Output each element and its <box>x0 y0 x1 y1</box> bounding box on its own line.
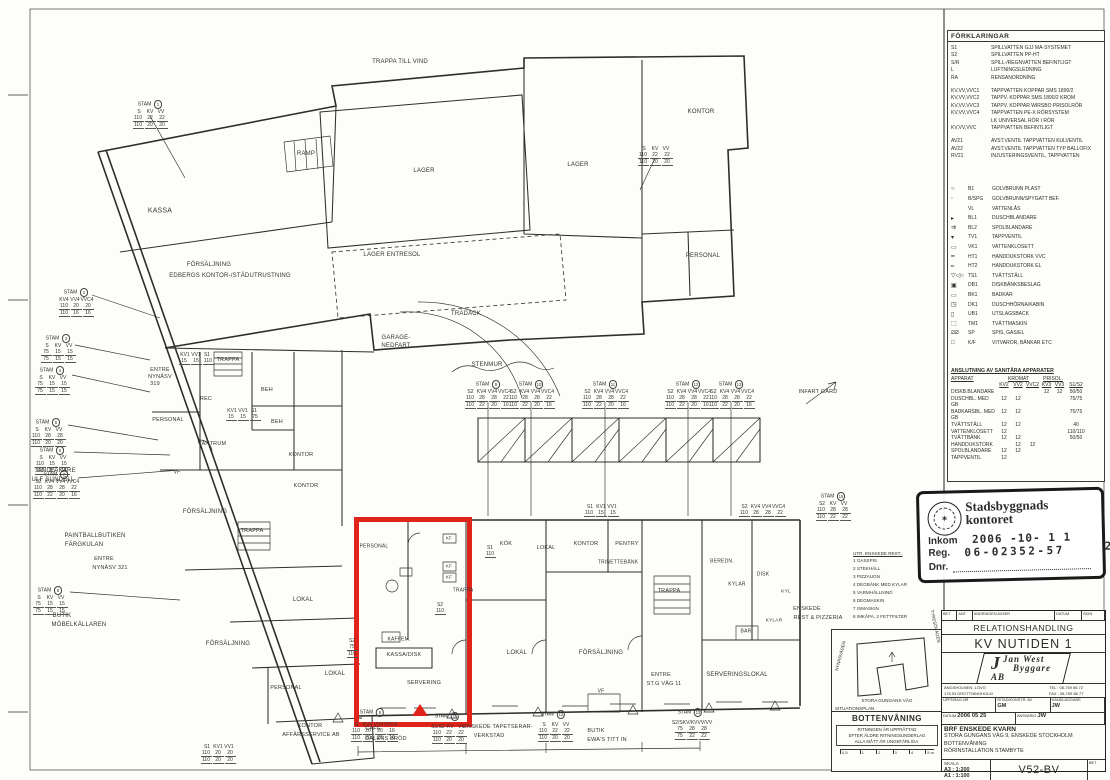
registration-stamp: ✶ Stadsbyggnads kontoret Inkom 2006 -10-… <box>916 487 1106 584</box>
legend-symbol-row: ▽◁○TS1TVÄTTSTÄLL <box>948 271 1104 281</box>
plan-label: MÖBELKÄLLAREN <box>52 622 107 628</box>
stam-number-circle: 9 <box>376 708 385 717</box>
plan-label: RAMP <box>297 151 315 157</box>
plan-label: FÖRSÄLJNING <box>187 262 231 268</box>
stam-number-circle: 7 <box>60 470 69 479</box>
apparat-row-name: BADKARSBL. MED GB <box>951 409 997 422</box>
legend-symbol-row: ◳DK1DUSCHHÖRNA/KABIN <box>948 300 1104 310</box>
plan-label: LAGER <box>567 162 588 168</box>
stam-annotation: S2110 <box>434 602 446 615</box>
plan-label: TRAPPA <box>217 358 240 364</box>
stam-annotation: SKV4VV4VVC4110202016110202016 <box>350 722 398 742</box>
plan-label: PERSONAL <box>270 686 302 692</box>
plan-label: BAR <box>741 629 752 634</box>
scale-tick: 0,5 <box>840 750 848 754</box>
plan-label: PENTRY <box>615 542 638 548</box>
stam-annotation: STAM 1SKVVV11022221102020 <box>132 100 168 129</box>
legend-symbol-row: ▯UB1UTSLAGSBACK <box>948 309 1104 319</box>
street-label-bottom: STORA GUNGANS VÄG <box>862 698 913 703</box>
apparat-table-title: ANSLUTNING AV SANITÄRA APPARATER <box>951 368 1102 374</box>
legend-row: KV,VV,VVC1TAPPVATTEN KOPPAR SMS 1890/2 <box>948 88 1104 95</box>
legend-symbol-icon: ▣ <box>951 282 968 289</box>
stam-annotation: S1KV1VV111020201102020 <box>200 744 236 764</box>
legend-symbol-icon: ╾ <box>951 263 968 270</box>
stam-annotation: STAM 12 <box>541 710 565 719</box>
apparat-table: ANSLUTNING AV SANITÄRA APPARATER APPARAT… <box>948 368 1104 462</box>
stam-annotation: S275110 <box>346 638 358 658</box>
stam-annotation: STAM 5SKVVV11028281102020 <box>30 418 66 447</box>
legend-symbol-icon: ▭ <box>951 292 968 299</box>
stamp-reg-number: 06-02352-57 <box>964 544 1065 559</box>
equipment-item: 5 VARMHÅLLNING <box>853 589 941 596</box>
plan-label: LOKAL <box>293 597 313 603</box>
plan-label: FÖRSÄLJNING <box>183 509 227 515</box>
legend-row: KV,VV,VVC4TAPPVATTEN PE-X RÖRSYSTEM <box>948 110 1104 117</box>
stamp-organization: Stadsbyggnads kontoret <box>965 498 1049 526</box>
revision-header-cell: ANT <box>957 611 972 620</box>
equipment-item: 8 IMKÅPA, 2 FETTFILTER <box>853 613 941 620</box>
plan-label: ST.G VÄG 11 <box>647 682 682 688</box>
plan-label: VÄNTRUM <box>198 442 227 448</box>
legend-symbol-icon: ━ <box>951 253 968 260</box>
plan-label: BUTIK <box>587 729 604 735</box>
stam-number-circle: 11 <box>451 712 460 721</box>
drawing-title-block: BOTTENVÅNING RITNINGEN ÄR UPPRÄTTADEFTER… <box>831 711 943 772</box>
company-logo: J Jan West Byggare AB <box>942 653 1105 684</box>
stam-annotation: STAM 10S2KV4VV4VVC4110282822110222016 <box>507 380 555 409</box>
legend-row: AV22AVST.VENTIL TAPPVATTEN TYP BALLOFIX <box>948 146 1104 153</box>
legend-row: KV,VV,VVC2TAPPV. KOPPAR SMS 1890/2 KROM <box>948 95 1104 102</box>
stam-number-circle: 11 <box>609 380 618 389</box>
stam-annotation: STAM 9S2KV4VV4VVC4110282822110222016 <box>464 380 512 409</box>
plan-label: PERSONAL <box>686 253 720 259</box>
plan-label: BEH <box>261 388 273 394</box>
plan-label: SERVERING <box>407 681 441 687</box>
plan-label: DISK <box>757 572 769 577</box>
project-name: KV NUTIDEN 1 <box>942 635 1105 653</box>
plan-label: VF <box>174 470 181 475</box>
plan-label: GARAGE- <box>381 335 410 341</box>
plan-label: REST & PIZZERIA <box>793 616 842 622</box>
stamp-reg-label: Reg. <box>928 547 950 559</box>
plan-label: KYLAR <box>766 618 783 623</box>
plan-label: FÖRSÄLJNING <box>206 641 250 647</box>
equipment-item: 7 ISMASKIN <box>853 605 941 612</box>
stam-annotation: STAM 7S2KV4VV4VVC4110282822110222016 <box>32 470 80 499</box>
plan-label: PERSONAL <box>360 544 389 549</box>
drawing-date: 2006 05 25 <box>957 713 986 719</box>
plan-label: TRAPPA <box>241 529 264 535</box>
signature-cell: RITAD/KONSTR. AVGM <box>996 698 1050 712</box>
scale-tick: 2 <box>876 750 880 754</box>
plan-label: INFART GÅRD <box>799 390 838 396</box>
drawing-number: V52-BV <box>991 760 1088 780</box>
scale-tick: 1 <box>860 750 864 754</box>
plan-label: KYL <box>781 589 791 594</box>
legend-row: S1SPILLVATTEN GJJ MA-SYSTEMET <box>948 45 1104 52</box>
legend-symbol-icon: ⧄⧄ <box>951 330 968 337</box>
plan-label: TRINETTEBÄNK <box>598 560 638 565</box>
legend-symbol-row: ⇉BL2SPOLBLANDARE <box>948 223 1104 233</box>
legend-symbol-row: ◦B/SPGGOLVBRUNN/SPYGATT BEF. <box>948 194 1104 204</box>
plan-label: NYNÄSV 321 <box>92 566 127 572</box>
apparat-row-name: DUSCHBL. MED GB <box>951 396 997 409</box>
scale-bar: 0,512345 m <box>840 749 934 758</box>
plan-label: KONTOR <box>574 542 599 548</box>
plan-label: NEDFART <box>381 343 410 349</box>
legend-symbol-icon: ▭ <box>951 244 968 251</box>
plan-label: KASSA <box>148 207 172 214</box>
drawing-sheet: TRAPPA TILL VINDKONTORRAMPLAGERLAGERKASS… <box>0 0 1110 780</box>
stam-annotation: S2KV4VV4VVC4110282822 <box>738 504 786 517</box>
equipment-item: 6 DEGMASKIN <box>853 597 941 604</box>
legend-title: FÖRKLARINGAR <box>948 31 1104 42</box>
legend-row: RARENSANORDNING <box>948 75 1104 82</box>
legend-group: S1SPILLVATTEN GJJ MA-SYSTEMETS2SPILLVATT… <box>948 45 1104 82</box>
legend-symbol-row: VLVATTENLÅS <box>948 204 1104 214</box>
stam-annotation: STAM 9 <box>360 708 384 717</box>
stam-number-circle: 13 <box>694 708 703 717</box>
legend-symbol-row: ━HT1HANDDUKSTORK VVC <box>948 252 1104 262</box>
plan-label: KF <box>446 537 452 542</box>
legend-symbol-icon: □ <box>951 340 968 346</box>
legend-symbol-row: ╾HT2HANDDUKSTORK EL <box>948 261 1104 271</box>
plan-label: ENTRE <box>150 368 170 374</box>
plan-label: TRÄDÄCK <box>451 311 481 317</box>
stam-annotation: S2/SKV/KVVV/VV752828752222 <box>672 720 712 740</box>
plan-label: BEH <box>271 420 283 426</box>
stamp-inkom-label: Inkom <box>928 535 958 547</box>
signature-cell: UPPDRAG.NR <box>942 698 996 712</box>
plan-label: TRAPPA <box>658 589 681 595</box>
plan-label: KONTOR <box>289 453 314 459</box>
revision-header-cell: ÄNDRINGEN AVSER <box>973 611 1055 620</box>
legend-row: RV21INJUSTERINGSVENTIL, TAPPVATTEN <box>948 153 1104 160</box>
plan-label: ENSKEDE TAPETSERAR- <box>463 725 533 731</box>
legend-symbol-icon: ▸ <box>951 215 968 222</box>
plan-label: KYLAR <box>728 582 745 587</box>
plan-label: NYNÄSV <box>148 375 172 381</box>
stam-annotation: KV1VV1S11515110 <box>178 352 214 365</box>
stam-annotation: STAM 13S2KV4VV4VVC4110282822110222016 <box>707 380 755 409</box>
legend-row: KV,VV,VVCTAPPVATTEN BEFINTLIGT <box>948 125 1104 132</box>
legend-symbol-icon: ◳ <box>951 301 968 308</box>
legend-symbol-row: ▣DB1DISKBÄNKSBESLAG <box>948 281 1104 291</box>
revision-header-cell: BET <box>942 611 957 620</box>
legend-line-list: S1SPILLVATTEN GJJ MA-SYSTEMETS2SPILLVATT… <box>948 45 1104 161</box>
legend-row: S/RSPILL-/REGNVATTEN BEFINTLIGT <box>948 60 1104 67</box>
scale-tick: 4 <box>909 750 913 754</box>
stam-annotation: KV1VV1S1151575 <box>225 408 261 421</box>
date-row: DATUM 2006 05 25 ANSVARIG JW <box>942 713 1105 725</box>
apparat-row-name: TAPPVENTIL <box>951 455 997 462</box>
project-line: RÖRINSTALLATION STAMBYTE <box>944 748 1105 755</box>
plan-label: LOKAL <box>325 671 345 677</box>
revision-header-cell: SIGN <box>1082 611 1105 620</box>
apparat-row-name: TVÄTTBÄNK <box>951 435 997 442</box>
plan-label: KONTOR <box>294 484 319 490</box>
plan-label: KAFFEM. <box>387 637 410 642</box>
stam-number-circle: 3 <box>62 334 71 343</box>
plan-label: KONTOR <box>688 109 715 115</box>
legend-symbol-icon: ◦ <box>951 196 968 202</box>
stam-number-circle: 4 <box>56 366 65 375</box>
plan-label: ENTRE <box>94 557 114 563</box>
stamp-stray-digit: 2 <box>1105 540 1110 553</box>
plan-label: KASSA/DISK <box>387 653 422 659</box>
plan-label: VERKSTAD <box>474 734 505 740</box>
stam-annotation: STAM 15S2KVVV11028281102222 <box>815 492 851 521</box>
stam-number-circle: 8 <box>54 586 63 595</box>
legend-symbol-icon: ○ <box>951 186 968 192</box>
apparat-row-name: HANDDUKSTORK <box>951 442 997 449</box>
signature-row: UPPDRAG.NRRITAD/KONSTR. AVGMHANDLÄGGAREJ… <box>942 698 1105 713</box>
stam-number-circle: 9 <box>492 380 501 389</box>
plan-label: ENTRE <box>651 673 671 679</box>
plan-label: LAGER <box>413 168 434 174</box>
plan-label: PERSONAL <box>152 418 184 424</box>
legend-row: LLUFTNINGSLEDNING <box>948 67 1104 74</box>
stam-number-circle: 13 <box>735 380 744 389</box>
plan-label: 319 <box>150 382 160 388</box>
stam-number-circle: 1 <box>154 100 163 109</box>
stam-annotation: STAM 11S2KV4VV4VVC4110282822110222016 <box>581 380 629 409</box>
plan-label: KF <box>446 565 452 570</box>
stam-annotation: STAM 2KV4VV4VVC411020201101616 <box>58 288 94 317</box>
legend-row: AV21AVST.VENTIL TAPPVATTEN KULVENTIL <box>948 138 1104 145</box>
legend-symbol-icon: ▾ <box>951 234 968 241</box>
legend-symbol-row: ▾TV1TAPPVENTIL <box>948 233 1104 243</box>
legend-symbol-row: ▭VK1VATTENKLOSETT <box>948 242 1104 252</box>
scale-number-row: SKALA A3 : 1:200 A1 : 1:100 V52-BV BET <box>942 760 1105 780</box>
plan-label: LOKAL <box>537 546 556 552</box>
revision-header-cell: DATUM <box>1055 611 1082 620</box>
legend-symbol-list: ○B1GOLVBRUNN PLAST◦B/SPGGOLVBRUNN/SPYGAT… <box>948 185 1104 348</box>
plan-label: PAINTBALLBUTIKEN <box>64 533 125 539</box>
legend-row: LK UNIVERSAL RÖR I RÖR <box>948 118 1104 125</box>
legend-symbol-row: ▸BL1DUSCHBLANDARE <box>948 213 1104 223</box>
stamp-dnr-label: Dnr. <box>929 562 949 573</box>
plan-label: KF <box>446 576 452 581</box>
legend-panel: FÖRKLARINGAR S1SPILLVATTEN GJJ MA-SYSTEM… <box>947 30 1105 482</box>
legend-group: KV,VV,VVC1TAPPVATTEN KOPPAR SMS 1890/2KV… <box>948 88 1104 132</box>
plan-label: KONTOR <box>298 724 323 730</box>
drawing-title: BOTTENVÅNING <box>832 714 942 723</box>
stam-number-circle: 12 <box>557 710 566 719</box>
apparat-row-name: TVÄTTSTÄLL <box>951 422 997 429</box>
stam-annotation: S1/S2KVVV11022221102020 <box>431 724 467 744</box>
stam-annotation: S1110 <box>484 545 496 558</box>
plan-label: EDBERGS KONTOR-/STÄDUTRUSTNING <box>169 273 291 279</box>
stam-annotation: STAM 12S2KV4VV4VVC4110282822110222016 <box>664 380 712 409</box>
plan-label: EWA'S TITT IN <box>587 738 627 744</box>
stam-annotation: STAM 3SKVVV751515751515 <box>40 334 76 363</box>
legend-symbol-icon: ▯ <box>951 311 968 318</box>
stam-number-circle: 12 <box>692 380 701 389</box>
plan-label: STENMUR <box>471 362 502 368</box>
stam-number-circle: 5 <box>52 418 61 427</box>
legend-symbol-icon: ▽◁○ <box>951 272 968 279</box>
plan-label: LAGER ENTRESOL <box>363 252 420 258</box>
stam-annotation: STAM 11 <box>435 712 459 721</box>
drawing-note: RITNINGEN ÄR UPPRÄTTADEFTER ÄLDRE RITNIN… <box>836 725 938 746</box>
legend-symbol-row: ▭BK1BADKAR <box>948 290 1104 300</box>
stam-number-circle: 6 <box>56 446 65 455</box>
document-type: RELATIONSHANDLING <box>942 621 1105 635</box>
scale-tick: 3 <box>893 750 897 754</box>
plan-label: REC <box>200 397 212 403</box>
stam-annotation: STAM 13 <box>678 708 702 717</box>
plan-label: KÖK <box>500 542 512 548</box>
signature-cell: HANDLÄGGAREJW <box>1051 698 1105 712</box>
situationsplan: NYNÄSVÄGEN TYRESÖVÄGEN STORA GUNGANS VÄG… <box>831 629 943 713</box>
company-address: ÄNGSHOLMEN, LÖVÖ 178 93 DROTTNINGHOLM TE… <box>942 684 1105 698</box>
project-description: BRF ENSKEDE KVARNSTORA GUNGANS VÄG 9, EN… <box>942 725 1105 760</box>
stam-number-circle: 10 <box>535 380 544 389</box>
scale-tick: 5 m <box>925 750 934 754</box>
legend-row: S2SPILLVATTEN PP-HT <box>948 52 1104 59</box>
stam-annotation: STAM 8SKVVV751515751515 <box>32 586 68 615</box>
plan-label: TRAPPA TILL VIND <box>372 59 428 65</box>
title-block: BETANTÄNDRINGEN AVSERDATUMSIGN RELATIONS… <box>941 610 1106 772</box>
city-seal-icon: ✶ <box>927 501 962 536</box>
legend-symbol-row: ⬚TM1TVÄTTMASKIN <box>948 319 1104 329</box>
legend-symbol-row: ○B1GOLVBRUNN PLAST <box>948 185 1104 195</box>
apparat-row-name: DISKB.BLANDARE <box>951 389 997 396</box>
legend-symbol-icon: ⬚ <box>951 320 968 327</box>
stam-number-circle: 2 <box>80 288 89 297</box>
stam-annotation: SKVVV11022221102020 <box>637 146 673 166</box>
plan-label: TRAPPA <box>453 588 474 593</box>
stam-annotation: STAM 4SKVVV751515751515 <box>34 366 70 395</box>
legend-symbol-row: ⧄⧄SPSPIS, GAS/EL <box>948 329 1104 339</box>
apparat-row-name: SPOLBLANDARE <box>951 448 997 455</box>
plan-label: SERVERINGSLOKAL <box>706 672 768 678</box>
stam-annotation: SKVVV11022221102020 <box>537 722 573 742</box>
legend-symbol-icon: ⇉ <box>951 224 968 231</box>
revision-header-row: BETANTÄNDRINGEN AVSERDATUMSIGN <box>942 611 1105 621</box>
plan-label: FÖRSÄLJNING <box>579 650 623 656</box>
legend-symbol-row: □K/FVITVAROR, BÄNKAR ETC <box>948 338 1104 348</box>
legend-group: AV21AVST.VENTIL TAPPVATTEN KULVENTILAV22… <box>948 138 1104 160</box>
plan-label: VF <box>598 689 605 694</box>
plan-label: FÄRGKULAN <box>65 542 103 548</box>
plan-label: AFFÄRSSERVICE AB <box>282 733 340 739</box>
stam-number-circle: 15 <box>837 492 846 501</box>
plan-label: LOKAL <box>507 650 527 656</box>
plan-label: BEREDN. <box>710 559 734 564</box>
project-line: STORA GUNGANS VÄG 9, ENSKEDE STOCKHOLM <box>944 733 1105 740</box>
plan-label: ENSKEDE <box>793 607 821 613</box>
stam-annotation: S1KV1VV11101515 <box>583 504 619 517</box>
